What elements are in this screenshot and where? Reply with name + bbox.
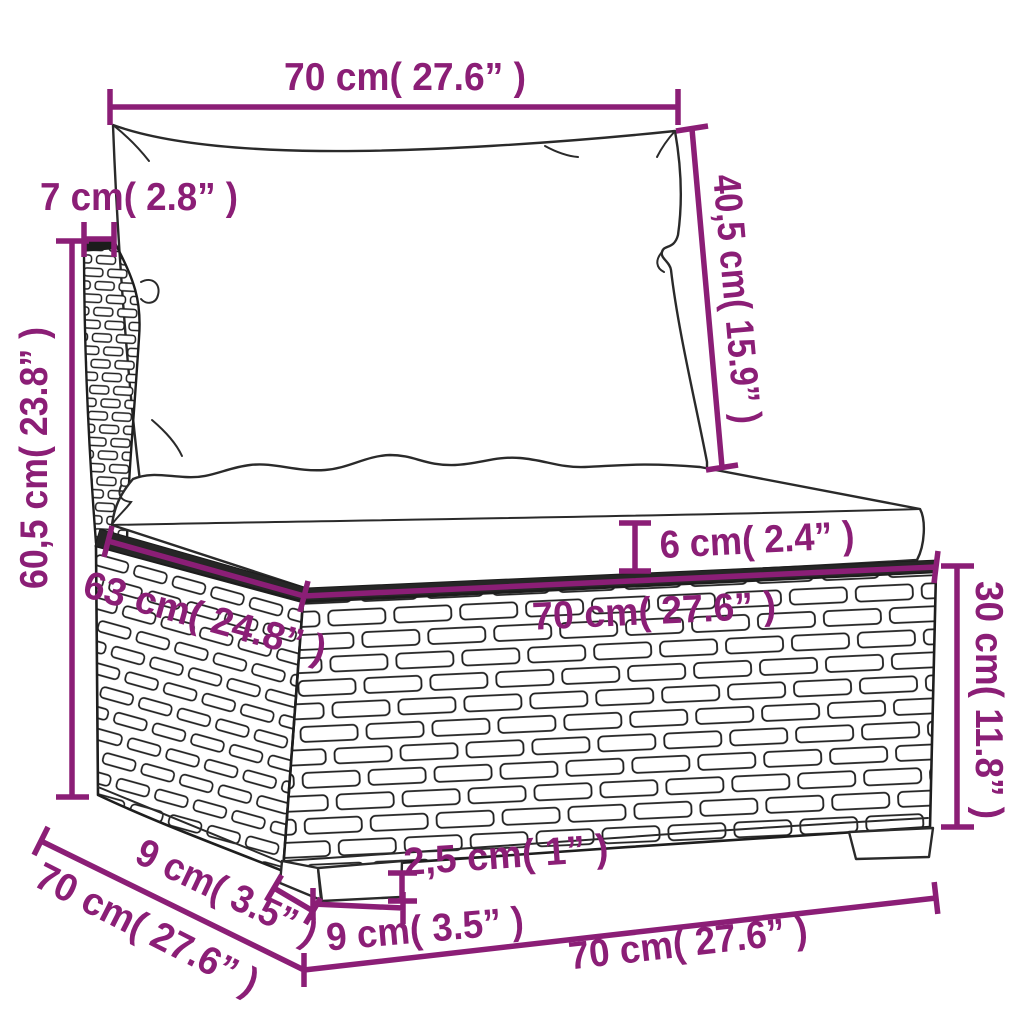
dimension-label: 30 cm( 11.8” ) [967, 581, 1010, 819]
dimension-label: 7 cm( 2.8” ) [40, 176, 238, 219]
dimension-label: 60,5 cm( 23.8” ) [13, 327, 56, 589]
sofa-dimension-diagram: 70 cm( 27.6” ) 7 cm( 2.8” ) 60,5 cm( 23.… [0, 0, 1024, 1024]
dimension-label: 70 cm( 27.6” ) [284, 56, 526, 99]
dimension-label: 70 cm( 27.6” ) [566, 909, 809, 979]
dimension-base-height: 30 cm( 11.8” ) [941, 566, 1010, 827]
sofa-foot-corner-front [318, 861, 402, 901]
sofa-line-art [82, 125, 938, 901]
dimension-backrest-height: 60,5 cm( 23.8” ) [13, 241, 89, 797]
sofa-foot-right [849, 828, 933, 859]
dimension-back-cushion-width: 70 cm( 27.6” ) [110, 56, 678, 125]
product-dimension-image: 70 cm( 27.6” ) 7 cm( 2.8” ) 60,5 cm( 23.… [0, 0, 1024, 1024]
